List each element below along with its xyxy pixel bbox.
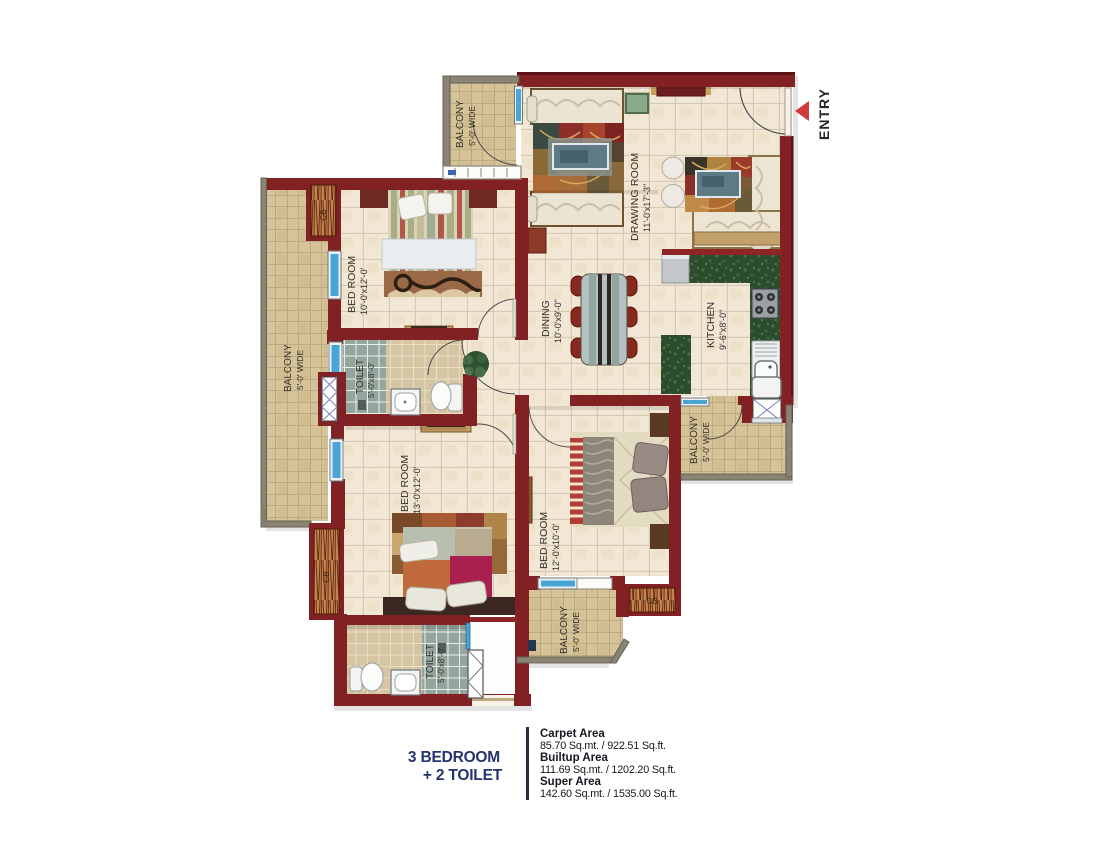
svg-text:BALCONY: BALCONY	[559, 606, 570, 654]
svg-text:CB: CB	[646, 597, 657, 606]
svg-text:DRAWING ROOM: DRAWING ROOM	[629, 153, 641, 241]
svg-text:5'-0' WIDE: 5'-0' WIDE	[467, 106, 477, 146]
svg-text:TOILET: TOILET	[355, 359, 366, 394]
svg-text:111.69 Sq.mt. / 1202.20 Sq.ft.: 111.69 Sq.mt. / 1202.20 Sq.ft.	[540, 764, 676, 776]
svg-text:BED ROOM: BED ROOM	[346, 256, 358, 313]
svg-text:CB: CB	[319, 209, 328, 220]
svg-text:Carpet Area: Carpet Area	[540, 728, 605, 740]
svg-text:KITCHEN: KITCHEN	[705, 302, 717, 348]
svg-text:CB: CB	[322, 571, 331, 582]
svg-text:3 BEDROOM: 3 BEDROOM	[408, 749, 500, 766]
svg-text:142.60 Sq.mt. / 1535.00 Sq.ft.: 142.60 Sq.mt. / 1535.00 Sq.ft.	[540, 788, 678, 800]
svg-text:5'-0' WIDE: 5'-0' WIDE	[701, 422, 711, 462]
svg-text:13'-0'x12'-0': 13'-0'x12'-0'	[412, 466, 422, 514]
svg-text:5'-0'x8'-0': 5'-0'x8'-0'	[366, 362, 376, 398]
svg-text:5'-0' WIDE: 5'-0' WIDE	[571, 612, 581, 652]
svg-text:BALCONY: BALCONY	[455, 100, 466, 148]
svg-text:10'-0'x12'-0': 10'-0'x12'-0'	[359, 267, 369, 315]
svg-text:11'-0'x17'-3": 11'-0'x17'-3"	[642, 184, 652, 232]
svg-text:5'-0' WIDE: 5'-0' WIDE	[295, 350, 305, 390]
svg-text:10'-0'x9'-0": 10'-0'x9'-0"	[553, 299, 563, 343]
svg-text:TOILET: TOILET	[425, 644, 436, 679]
svg-text:5'-0'x8'-0': 5'-0'x8'-0'	[436, 647, 446, 683]
svg-text:12'-0'x10'-0': 12'-0'x10'-0'	[551, 523, 561, 571]
svg-text:ENTRY: ENTRY	[816, 88, 832, 140]
svg-text:Super Area: Super Area	[540, 776, 602, 788]
svg-text:BED ROOM: BED ROOM	[538, 512, 550, 569]
svg-text:85.70 Sq.mt. / 922.51 Sq.ft.: 85.70 Sq.mt. / 922.51 Sq.ft.	[540, 740, 666, 752]
svg-text:+ 2 TOILET: + 2 TOILET	[423, 767, 503, 784]
svg-text:BALCONY: BALCONY	[689, 416, 700, 464]
svg-text:BED ROOM: BED ROOM	[399, 455, 411, 512]
svg-text:9'-6"x8'-0": 9'-6"x8'-0"	[718, 310, 728, 350]
svg-text:DINING: DINING	[540, 300, 552, 337]
svg-text:Builtup Area: Builtup Area	[540, 752, 609, 764]
svg-text:BALCONY: BALCONY	[283, 344, 294, 392]
